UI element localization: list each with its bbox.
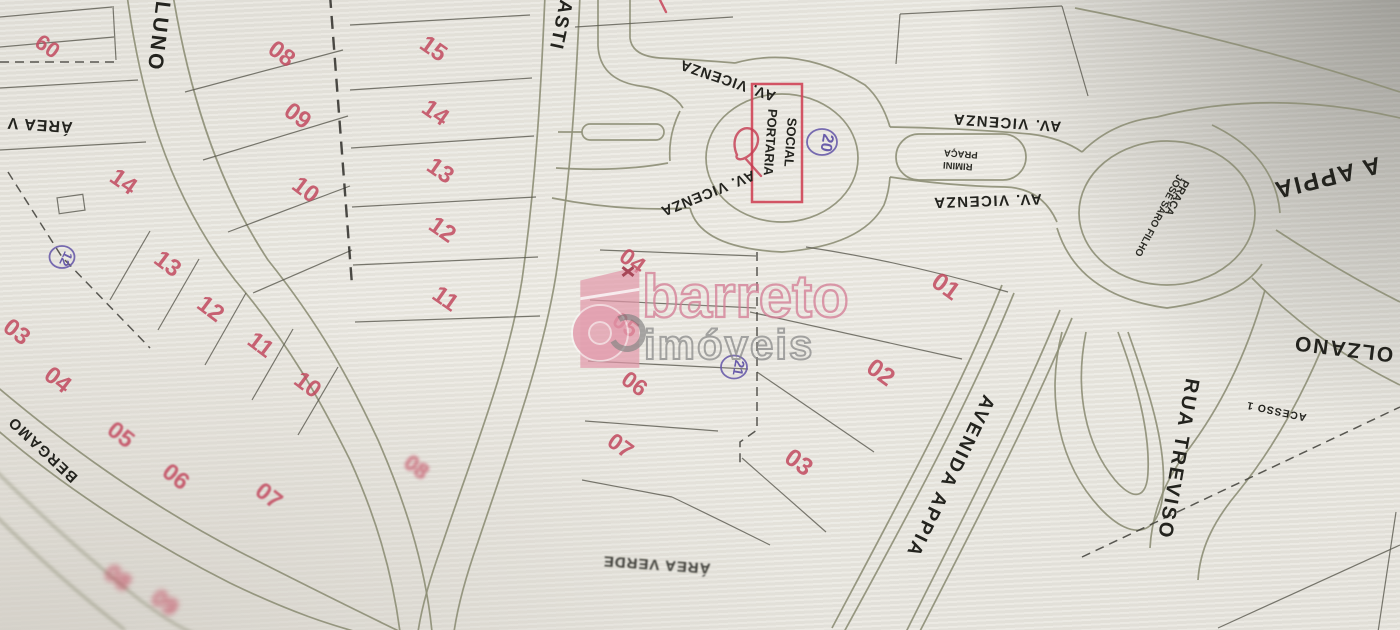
street-label-acesso-1: ACESSO 1	[1245, 399, 1307, 423]
lot-number: 11	[242, 327, 279, 364]
lot-number: 01	[926, 267, 965, 306]
lot-number: 06	[157, 458, 195, 496]
dashed-boundary-lines	[0, 0, 1400, 557]
lot-number: 05	[608, 306, 644, 342]
portaria-label: SOCIAL	[781, 117, 799, 167]
lot-number: 07	[250, 477, 288, 515]
lot-number: 03	[0, 313, 35, 351]
plat-map-photo: LUNOASTIAV. VICENZAAV. VICENZAAV. VICENZ…	[0, 0, 1400, 630]
lot-number: 10	[287, 171, 325, 209]
lot-number: 08	[263, 35, 301, 73]
portaria-label: PORTARIA	[761, 108, 781, 176]
lot-number: 07	[603, 427, 639, 463]
lot-number: 09	[279, 97, 317, 135]
lot-number: 08	[99, 559, 137, 597]
lot-number: 13	[422, 152, 459, 189]
lot-number: 14	[417, 94, 455, 132]
lot-number: 12	[424, 211, 461, 248]
subdivision-plat-map: LUNOASTIAV. VICENZAAV. VICENZAAV. VICENZ…	[0, 0, 1400, 630]
pen-circled-number: 20	[816, 133, 836, 154]
lot-number: 08	[399, 450, 434, 485]
map-labels: LUNOASTIAV. VICENZAAV. VICENZAAV. VICENZ…	[0, 0, 1395, 622]
lot-number: 13	[149, 245, 187, 283]
praca-rimini-label: RIMINI	[943, 159, 973, 172]
lot-number: 03	[779, 443, 818, 482]
lot-number: 14	[105, 163, 143, 201]
lot-number: 06	[617, 365, 653, 401]
lot-number: 12	[192, 290, 230, 328]
lot-number: 15	[415, 30, 452, 67]
lot-number: 09	[146, 584, 184, 622]
praca-rimini-label: PRAÇA	[943, 147, 978, 160]
street-label-luno: LUNO	[143, 0, 175, 74]
street-label-av-vicenza-ne: AV. VICENZA	[952, 110, 1062, 135]
area-verde-label-west: ÁREA V	[6, 114, 73, 138]
red-pen-mark-edge	[660, 0, 666, 12]
lot-number: 05	[102, 416, 140, 454]
traffic-island	[582, 124, 664, 140]
street-label-av-vicenza-se: AV. VICENZA	[932, 190, 1042, 211]
street-label-asti: ASTI	[545, 0, 576, 52]
street-label-rua-treviso: RUA TREVISO	[1153, 377, 1203, 542]
street-label-via-appia: A APPIA	[1270, 151, 1383, 204]
lot-number: 10	[289, 366, 327, 404]
lot-number: 09	[31, 29, 65, 64]
area-verde-label-south: ÁREA VERDE	[602, 552, 711, 576]
pen-circled-number: 21	[730, 359, 748, 377]
street-label-bolzano: OLZANO	[1292, 331, 1395, 366]
lot-number: 04	[39, 361, 77, 399]
lot-number: 02	[861, 353, 900, 392]
lot-number: 04	[615, 242, 651, 278]
praca-jose-saro-filho-label: JOSÉ SARO FILHO	[1132, 172, 1186, 259]
lot-number: 11	[427, 281, 463, 318]
